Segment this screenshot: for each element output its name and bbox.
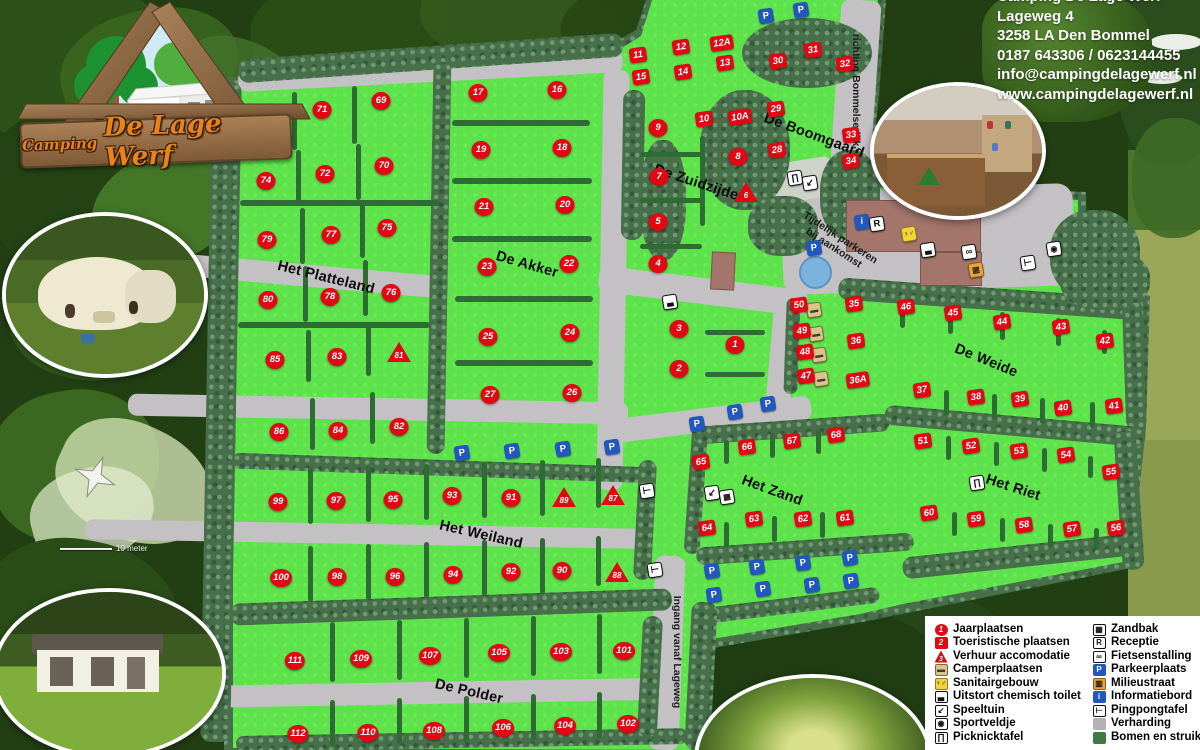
foliage-leaf	[1132, 118, 1200, 238]
pitch-number: 46	[900, 302, 912, 313]
pitch-20-marker: 20	[556, 196, 575, 214]
plot-divider	[724, 522, 729, 548]
pitch-number: 63	[748, 514, 760, 525]
plot-divider	[424, 542, 429, 598]
pitch-number: 38	[970, 392, 982, 403]
pitch-number: 55	[1105, 467, 1117, 478]
legend-label: Jaarplaatsen	[953, 624, 1023, 636]
pitch-8-marker: 8	[729, 148, 748, 166]
pitch-62-marker: 62	[794, 510, 813, 527]
plot-divider	[1090, 402, 1095, 428]
pitch-number: 29	[770, 104, 782, 115]
plot-divider	[952, 512, 957, 536]
uitstort-icon: ▃	[919, 241, 936, 258]
pitch-52-marker: 52	[962, 437, 981, 454]
legend-label: Informatiebord	[1111, 691, 1192, 703]
uitstort-icon: ▃	[661, 293, 678, 310]
pitch-number: 66	[741, 442, 753, 453]
chalet-door	[127, 657, 145, 689]
parking-icon: P	[453, 444, 470, 461]
plot-divider	[452, 236, 592, 242]
receptie-icon: R	[1093, 637, 1106, 649]
pitch-76-marker: 76	[382, 284, 401, 302]
plot-divider	[306, 330, 311, 382]
pitch-number: 3	[676, 324, 681, 334]
pitch-number: 12	[675, 42, 687, 53]
pitch-number: 61	[839, 513, 851, 524]
plot-divider	[816, 430, 821, 454]
plot-divider	[944, 390, 949, 416]
plot-divider	[540, 538, 545, 594]
sanitair-icon: ♀♂	[935, 678, 948, 690]
plot-divider	[994, 442, 999, 466]
pitch-100-marker: 100	[270, 569, 292, 587]
pitch-12-marker: 12	[672, 38, 691, 55]
plot-divider	[640, 244, 702, 249]
pitch-number: 65	[695, 457, 707, 468]
legend-label: Milieustraat	[1111, 678, 1175, 690]
pitch-number: 27	[485, 390, 496, 400]
pitch-number: 103	[553, 647, 569, 657]
contact-email[interactable]: info@campingdelagewerf.nl	[997, 65, 1197, 85]
compass-icon	[74, 456, 116, 498]
pitch-number: 42	[1099, 336, 1111, 347]
pitch-54-marker: 54	[1057, 446, 1076, 463]
pitch-106-marker: 106	[492, 719, 514, 737]
legend-item-bomen-en-struiken: Bomen en struiken	[1092, 731, 1200, 744]
pitch-21-marker: 21	[475, 198, 494, 216]
plot-divider	[597, 614, 602, 674]
pitch-23-marker: 23	[478, 258, 497, 276]
pitch-47-marker: 47	[797, 367, 816, 384]
contact-line: Lageweg 4	[997, 7, 1197, 27]
legend-item-receptie: RReceptie	[1092, 637, 1200, 650]
verhuur-marker-icon: 3	[934, 650, 948, 663]
legend-panel: 1Jaarplaatsen2Toeristische plaatsen3Verh…	[925, 616, 1200, 750]
parking-icon: P	[603, 438, 620, 455]
pitch-41-marker: 41	[1105, 397, 1124, 414]
legend-item-uitstort-chemisch-toilet: ▃Uitstort chemisch toilet	[934, 691, 1086, 704]
plot-divider	[310, 398, 315, 450]
pitch-75-marker: 75	[378, 219, 397, 237]
plot-divider	[1040, 398, 1045, 424]
pitch-3-marker: 3	[670, 320, 689, 338]
pitch-85-marker: 85	[266, 351, 285, 369]
pitch-39-marker: 39	[1011, 390, 1030, 407]
pitch-55-marker: 55	[1102, 463, 1121, 480]
pitch-number: 31	[807, 45, 819, 56]
plot-divider	[705, 372, 765, 377]
pingpong-icon: ⊢	[1092, 704, 1106, 717]
scale-bar	[60, 548, 112, 550]
legend-item-parkeerplaats: PParkeerplaats	[1092, 664, 1200, 677]
plot-divider	[531, 694, 536, 740]
legend-item-sportveldje: ◉Sportveldje	[934, 718, 1086, 731]
parking-icon: P	[792, 1, 809, 18]
legend-label: Toeristische plaatsen	[953, 637, 1070, 649]
road-label: Ingang vanaf Lageweg	[671, 596, 683, 709]
pitch-109-marker: 109	[350, 650, 372, 668]
pitch-68-marker: 68	[827, 426, 846, 443]
pitch-number: 44	[996, 317, 1008, 328]
legend-item-sanitairgebouw: ♀♂Sanitairgebouw	[934, 677, 1086, 690]
pitch-number: 76	[386, 288, 397, 298]
legend-label: Verharding	[1111, 718, 1171, 730]
jaarplaats-marker-icon: 1	[935, 624, 948, 636]
pitch-number: 58	[1018, 520, 1030, 531]
pitch-29-marker: 29	[767, 100, 786, 117]
pitch-number: 41	[1108, 401, 1120, 412]
pitch-59-marker: 59	[967, 510, 986, 527]
plot-divider	[352, 86, 357, 144]
pitch-108-marker: 108	[423, 722, 445, 740]
pitch-2-marker: 2	[670, 360, 689, 378]
garden-path-photo	[694, 674, 932, 750]
pitch-number: 25	[483, 332, 494, 342]
plot-divider	[772, 516, 777, 542]
parking-icon: P	[688, 415, 705, 432]
pitch-33-marker: 33	[842, 126, 861, 143]
pitch-80-marker: 80	[259, 291, 278, 309]
pitch-97-marker: 97	[327, 492, 346, 510]
camping-logo: Camping De Lage Werf	[4, 0, 326, 182]
milieu-icon: ▥	[967, 261, 984, 278]
pitch-110-marker: 110	[357, 724, 378, 742]
pitch-number: 48	[799, 347, 811, 358]
legend-label: Receptie	[1111, 637, 1159, 649]
pitch-number: 101	[616, 646, 632, 656]
milieu-icon: ▥	[1092, 677, 1106, 690]
plot-divider	[640, 152, 702, 157]
pitch-48-marker: 48	[796, 343, 815, 360]
camping-table	[93, 311, 115, 323]
plot-divider	[455, 360, 593, 366]
pitch-number: 81	[395, 352, 404, 360]
legend-right-column: ▦ZandbakRReceptie∞FietsenstallingPParkee…	[1092, 623, 1200, 744]
pitch-number: 100	[273, 573, 289, 583]
pitch-98-marker: 98	[328, 568, 347, 586]
parking-icon: P	[726, 403, 743, 420]
verharding-icon	[1092, 718, 1106, 731]
pitch-number: 30	[772, 56, 784, 67]
info-icon: i	[1093, 691, 1106, 703]
pitch-number: 8	[735, 152, 740, 162]
pitch-53-marker: 53	[1010, 442, 1029, 459]
legend-label: Sanitairgebouw	[953, 678, 1039, 690]
sportveldje-icon: ◉	[934, 718, 948, 731]
scale-text: 10 meter	[116, 544, 148, 553]
speeltuin-icon: ↙	[934, 704, 948, 717]
pitch-number: 16	[552, 85, 563, 95]
pitch-number: 60	[923, 508, 935, 519]
fiets-icon: ∞	[1092, 650, 1106, 663]
legend-item-jaarplaatsen: 1Jaarplaatsen	[934, 623, 1086, 636]
plot-divider	[238, 322, 430, 328]
parking-icon: P	[794, 554, 811, 571]
pitch-12A-marker: 12A	[709, 34, 734, 52]
legend-item-toeristische-plaatsen: 2Toeristische plaatsen	[934, 637, 1086, 650]
pitch-105-marker: 105	[488, 644, 510, 662]
contact-website[interactable]: www.campingdelagewerf.nl	[997, 85, 1197, 105]
pitch-number: 68	[830, 430, 842, 441]
pitch-number: 33	[845, 130, 857, 141]
pitch-78-marker: 78	[321, 288, 340, 306]
pitch-number: 12A	[713, 37, 732, 49]
legend-label: Pingpongtafel	[1111, 705, 1188, 717]
plot-divider	[356, 144, 361, 200]
pitch-64-marker: 64	[698, 519, 717, 536]
pitch-number: 18	[557, 143, 568, 153]
pitch-number: 59	[970, 514, 982, 525]
pitch-number: 20	[560, 200, 571, 210]
parking-icon: P	[748, 558, 765, 575]
pitch-number: 10	[698, 114, 710, 125]
contact-info: Camping De Lage WerfLageweg 43258 LA Den…	[997, 0, 1197, 104]
pitch-number: 64	[701, 523, 713, 534]
bomen-icon	[1093, 732, 1106, 744]
plot-divider	[308, 468, 313, 524]
pitch-15-marker: 15	[632, 68, 651, 85]
pitch-number: 92	[506, 567, 517, 577]
plot-divider	[366, 324, 371, 376]
parking-icon: P	[503, 442, 520, 459]
verhuur-marker-icon: 3	[935, 651, 948, 663]
plot-divider	[724, 440, 729, 464]
fiets-icon: ∞	[1093, 651, 1106, 663]
picknick-icon: ∏	[934, 731, 948, 744]
pitch-number: 34	[845, 156, 857, 167]
plot-divider	[360, 202, 365, 258]
pitch-25-marker: 25	[479, 328, 498, 346]
legend-label: Zandbak	[1111, 624, 1158, 636]
plot-divider	[330, 622, 335, 682]
pitch-number: 62	[797, 514, 809, 525]
pitch-65-marker: 65	[692, 453, 711, 470]
pitch-31-marker: 31	[804, 41, 823, 58]
pitch-number: 28	[771, 145, 783, 156]
info-icon: i	[853, 213, 870, 230]
pitch-number: 78	[325, 292, 336, 302]
pitch-13-marker: 13	[716, 54, 735, 71]
pitch-92-marker: 92	[502, 563, 521, 581]
fiets-icon: ∞	[960, 243, 977, 260]
contact-line: 3258 LA Den Bommel	[997, 26, 1197, 46]
pitch-11-marker: 11	[629, 46, 648, 63]
pitch-57-marker: 57	[1063, 520, 1082, 537]
zandbak-icon: ▦	[1093, 624, 1106, 636]
pitch-84-marker: 84	[329, 422, 348, 440]
pitch-number: 21	[479, 202, 490, 212]
pitch-number: 35	[848, 299, 860, 310]
sign-name: De Lage Werf	[103, 106, 291, 172]
zandbak-icon: ▦	[1092, 623, 1106, 636]
legend-label: Picknicktafel	[953, 732, 1023, 744]
parking-icon: P	[703, 562, 720, 579]
legend-label: Sportveldje	[953, 718, 1016, 730]
plot-divider	[397, 698, 402, 744]
pitch-number: 57	[1066, 524, 1078, 535]
pitch-number: 110	[360, 728, 375, 738]
plot-divider	[596, 536, 601, 586]
pitch-number: 54	[1060, 450, 1072, 461]
legend-item-milieustraat: ▥Milieustraat	[1092, 677, 1200, 690]
picknick-icon: ∏	[968, 474, 985, 491]
legend-label: Camperplaatsen	[953, 664, 1042, 676]
plot-divider	[455, 296, 593, 302]
legend-item-fietsenstalling: ∞Fietsenstalling	[1092, 650, 1200, 663]
pitch-number: 99	[273, 497, 284, 507]
pitch-34-marker: 34	[842, 152, 861, 169]
pitch-number: 95	[388, 495, 399, 505]
pitch-17-marker: 17	[469, 84, 488, 102]
pitch-1-marker: 1	[726, 336, 745, 354]
pitch-104-marker: 104	[554, 717, 576, 735]
pitch-number: 32	[839, 59, 851, 70]
legend-label: Speeltuin	[953, 705, 1005, 717]
pitch-number: 69	[376, 96, 387, 106]
plot-divider	[596, 458, 601, 508]
pitch-number: 53	[1013, 446, 1025, 457]
pitch-70-marker: 70	[375, 157, 394, 175]
pitch-number: 82	[394, 422, 405, 432]
pitch-number: 2	[676, 364, 681, 374]
plot-divider	[300, 208, 305, 264]
pitch-number: 96	[390, 572, 401, 582]
receptie-icon: R	[1092, 637, 1106, 650]
picknick-icon: ∏	[935, 732, 948, 744]
legend-item-picknicktafel: ∏Picknicktafel	[934, 731, 1086, 744]
pitch-number: 88	[613, 572, 622, 580]
pitch-99-marker: 99	[269, 493, 288, 511]
pitch-number: 9	[655, 123, 660, 133]
pitch-103-marker: 103	[550, 643, 572, 661]
plot-divider	[366, 466, 371, 522]
tent-awning	[125, 270, 176, 324]
plot-divider	[452, 178, 592, 184]
pitch-63-marker: 63	[745, 510, 764, 527]
pitch-77-marker: 77	[322, 226, 341, 244]
pitch-number: 56	[1110, 523, 1122, 534]
pitch-number: 87	[609, 495, 618, 503]
pitch-32-marker: 32	[836, 55, 855, 72]
plot-divider	[464, 696, 469, 742]
pitch-number: 107	[422, 651, 438, 661]
pitch-number: 23	[482, 262, 493, 272]
pitch-number: 106	[495, 723, 511, 733]
legend-item-zandbak: ▦Zandbak	[1092, 623, 1200, 636]
pingpong-icon: ⊢	[646, 561, 663, 578]
building	[710, 251, 736, 290]
pitch-10A-marker: 10A	[727, 108, 752, 126]
pitch-50-marker: 50	[790, 296, 809, 313]
pitch-number: 104	[557, 721, 573, 731]
parking-icon: P	[1092, 664, 1106, 677]
pitch-61-marker: 61	[836, 509, 855, 526]
camper-icon: ▬	[935, 664, 948, 676]
chalet-photo	[0, 588, 226, 750]
pitch-number: 94	[448, 570, 459, 580]
pitch-number: 22	[564, 259, 575, 269]
parking-icon: P	[754, 580, 771, 597]
pitch-number: 89	[560, 497, 569, 505]
plot-divider	[705, 330, 765, 335]
plot-divider	[240, 200, 440, 206]
pitch-69-marker: 69	[372, 92, 391, 110]
pitch-number: 17	[473, 88, 484, 98]
pitch-number: 10A	[731, 111, 750, 123]
camper-icon: ▬	[805, 301, 822, 318]
pitch-66-marker: 66	[738, 438, 757, 455]
pitch-14-marker: 14	[674, 63, 693, 80]
sportveldje-icon: ◉	[1045, 240, 1062, 257]
pitch-82-marker: 82	[390, 418, 409, 436]
pitch-number: 36	[850, 336, 862, 347]
pitch-36A-marker: 36A	[845, 371, 870, 389]
uitstort-icon: ▃	[934, 691, 948, 704]
shelf-item	[1005, 121, 1011, 129]
chalet-window	[91, 657, 114, 686]
pitch-58-marker: 58	[1015, 516, 1034, 533]
legend-item-speeltuin: ↙Speeltuin	[934, 704, 1086, 717]
pingpong-icon: ⊢	[1019, 254, 1036, 271]
pitch-number: 108	[426, 726, 442, 736]
camping-sign: Camping De Lage Werf	[19, 113, 292, 168]
plot-divider	[540, 460, 545, 516]
plot-divider	[482, 540, 487, 596]
legend-label: Bomen en struiken	[1111, 732, 1200, 744]
pond	[799, 256, 832, 289]
person	[129, 301, 138, 314]
pitch-number: 102	[620, 719, 636, 729]
pitch-number: 36A	[849, 374, 868, 386]
speeltuin-icon: ↙	[801, 174, 818, 191]
toeristische-marker-icon: 2	[934, 637, 948, 650]
pitch-79-marker: 79	[258, 231, 277, 249]
legend-item-verharding: Verharding	[1092, 718, 1200, 731]
pitch-67-marker: 67	[783, 432, 802, 449]
plot-divider	[531, 616, 536, 676]
garden-photo-bg	[698, 678, 928, 750]
receptie-icon: R	[868, 215, 885, 232]
parking-icon: P	[841, 549, 858, 566]
info-icon: i	[1092, 691, 1106, 704]
shelf-item	[987, 121, 993, 129]
pitch-18-marker: 18	[553, 139, 572, 157]
parking-icon: P	[759, 395, 776, 412]
pitch-number: 39	[1014, 394, 1026, 405]
pitch-56-marker: 56	[1107, 519, 1126, 536]
pitch-number: 97	[331, 496, 342, 506]
pitch-46-marker: 46	[897, 298, 916, 315]
pitch-number: 49	[796, 326, 808, 337]
pitch-number: 75	[382, 223, 393, 233]
plot-divider	[1042, 448, 1047, 472]
parking-icon: P	[757, 7, 774, 24]
blue-chair	[81, 333, 95, 343]
campground-map-page: 7371697472707977758078768583818684821716…	[0, 0, 1200, 750]
pitch-number: 90	[557, 566, 568, 576]
pitch-93-marker: 93	[443, 487, 462, 505]
parking-icon: P	[705, 586, 722, 603]
pitch-number: 79	[262, 235, 273, 245]
uitstort-icon: ▃	[935, 691, 948, 703]
pitch-19-marker: 19	[472, 141, 491, 159]
pitch-number: 85	[270, 355, 281, 365]
pitch-83-marker: 83	[328, 348, 347, 366]
pitch-86-marker: 86	[270, 423, 289, 441]
pitch-38-marker: 38	[967, 388, 986, 405]
pitch-49-marker: 49	[793, 322, 812, 339]
